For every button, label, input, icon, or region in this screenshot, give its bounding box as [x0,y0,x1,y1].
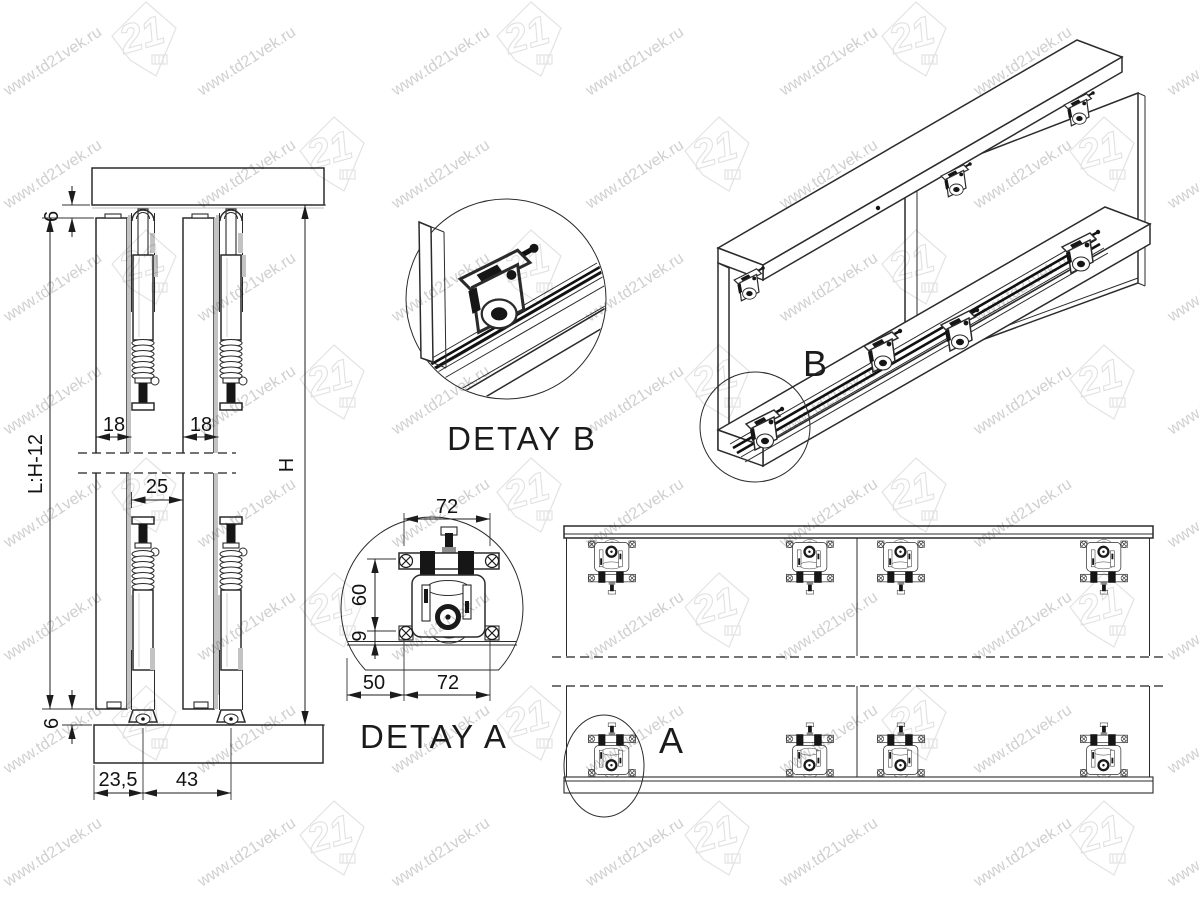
technical-drawing-page: www.td21vek.ru 21 21 [0,0,1200,900]
watermark-layer [0,0,1200,900]
drawing-canvas: www.td21vek.ru 21 21 [0,0,1200,900]
